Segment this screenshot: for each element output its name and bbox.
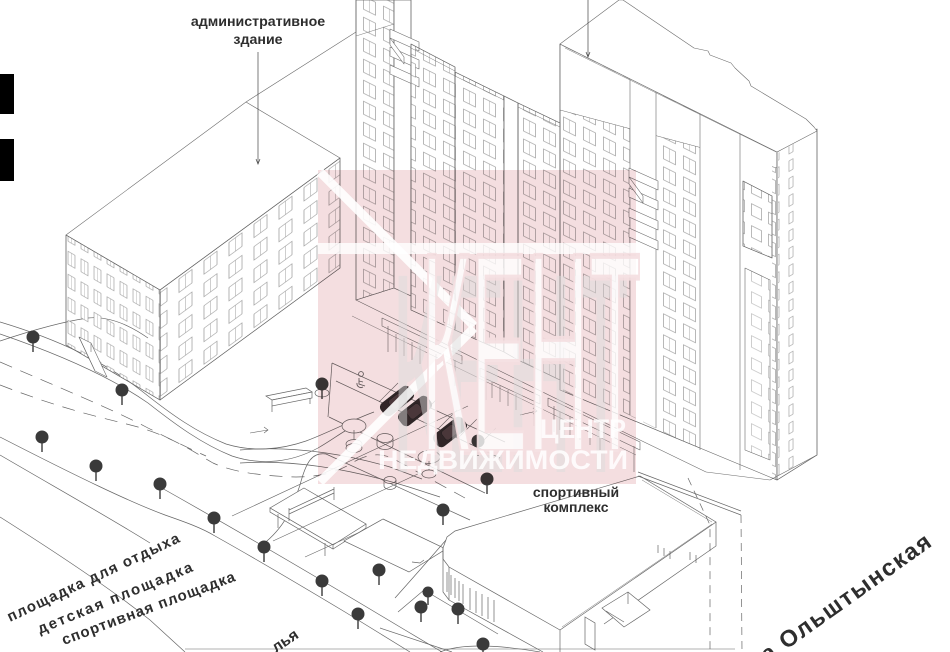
svg-text:лья: лья — [269, 626, 302, 652]
svg-text:НЕДВИЖИМОСТИ: НЕДВИЖИМОСТИ — [378, 445, 628, 475]
svg-text:улица Ольштынская: улица Ольштынская — [704, 527, 937, 652]
svg-text:здание: здание — [233, 32, 282, 48]
svg-text:административное: административное — [191, 14, 325, 30]
svg-text:спортивный: спортивный — [533, 484, 619, 500]
svg-text:комплекс: комплекс — [543, 499, 608, 515]
svg-text:ЦЕНТР: ЦЕНТР — [540, 414, 626, 444]
